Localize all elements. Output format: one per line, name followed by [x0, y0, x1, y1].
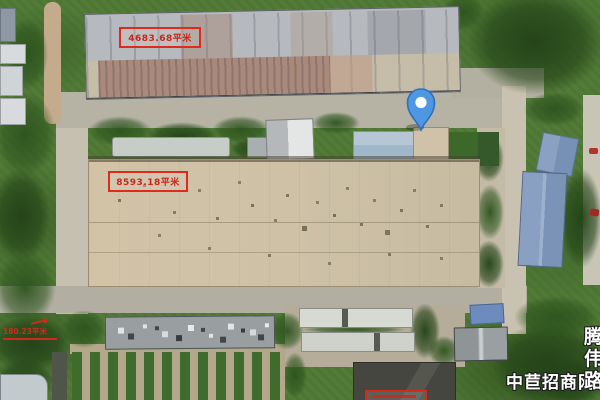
white-roof-strip	[0, 66, 23, 96]
building-bottom-left-corner	[0, 374, 48, 400]
bush-patch	[283, 352, 307, 398]
parked-car-red	[590, 208, 600, 216]
building-bottom-left-long	[105, 315, 275, 349]
area-label-top-text: 4683.68平米	[128, 31, 192, 44]
roof-rust-section	[98, 56, 331, 98]
bush-patch	[62, 310, 106, 348]
roof-seam-line	[89, 252, 479, 253]
left-annotation-text: 180.23平米	[3, 326, 47, 337]
roof-patch	[367, 10, 426, 55]
annotation-underline	[3, 338, 57, 340]
roof-patch	[290, 12, 333, 57]
annotation-arrow-head	[44, 318, 48, 324]
white-roof-strip	[0, 98, 26, 125]
white-roof-strip	[0, 44, 26, 64]
satellite-map[interactable]: 4683.68平米 8593.18平米 180.	[0, 0, 600, 400]
watermark: 中苣招商网	[506, 368, 596, 393]
roof-vent-speckles	[89, 160, 90, 161]
area-label-middle: 8593.18平米	[108, 171, 188, 192]
rooftop-units-dark	[106, 318, 108, 320]
canopy-gap	[374, 333, 380, 351]
roof-seam-line	[89, 222, 479, 223]
tree-canopy	[0, 252, 56, 324]
dark-strip-bottom-left	[52, 352, 67, 400]
grey-gabled-building-bottom	[454, 327, 509, 362]
small-white-gabled-building	[265, 118, 314, 161]
canopy-gap	[342, 309, 348, 327]
partial-label-text-tops	[372, 395, 416, 398]
area-label-middle-text: 8593.18平米	[116, 175, 180, 188]
roof-pink-patch	[330, 55, 373, 93]
left-annotation: 180.23平米	[1, 317, 63, 345]
vertical-road-name-label: 腾伟路	[584, 326, 600, 392]
tree-canopy	[0, 168, 50, 263]
canopy-strip-bottom-1	[299, 308, 413, 328]
area-label-top: 4683.68平米	[119, 27, 201, 48]
building-top-left-grey	[0, 8, 16, 42]
blue-roof-strip-bottom	[469, 303, 504, 325]
tree-patch	[524, 92, 584, 126]
blue-roof-building-small	[536, 132, 580, 177]
bush-column-right-of-building	[476, 184, 504, 240]
partial-area-label	[365, 390, 427, 400]
canopy-strip-grey	[112, 137, 230, 157]
parked-car-red	[589, 148, 598, 154]
greenhouse-rows	[72, 352, 285, 400]
location-pin-icon[interactable]	[404, 86, 438, 132]
blue-roof-building-large	[518, 171, 568, 268]
canopy-strip-bottom-2	[301, 332, 415, 352]
